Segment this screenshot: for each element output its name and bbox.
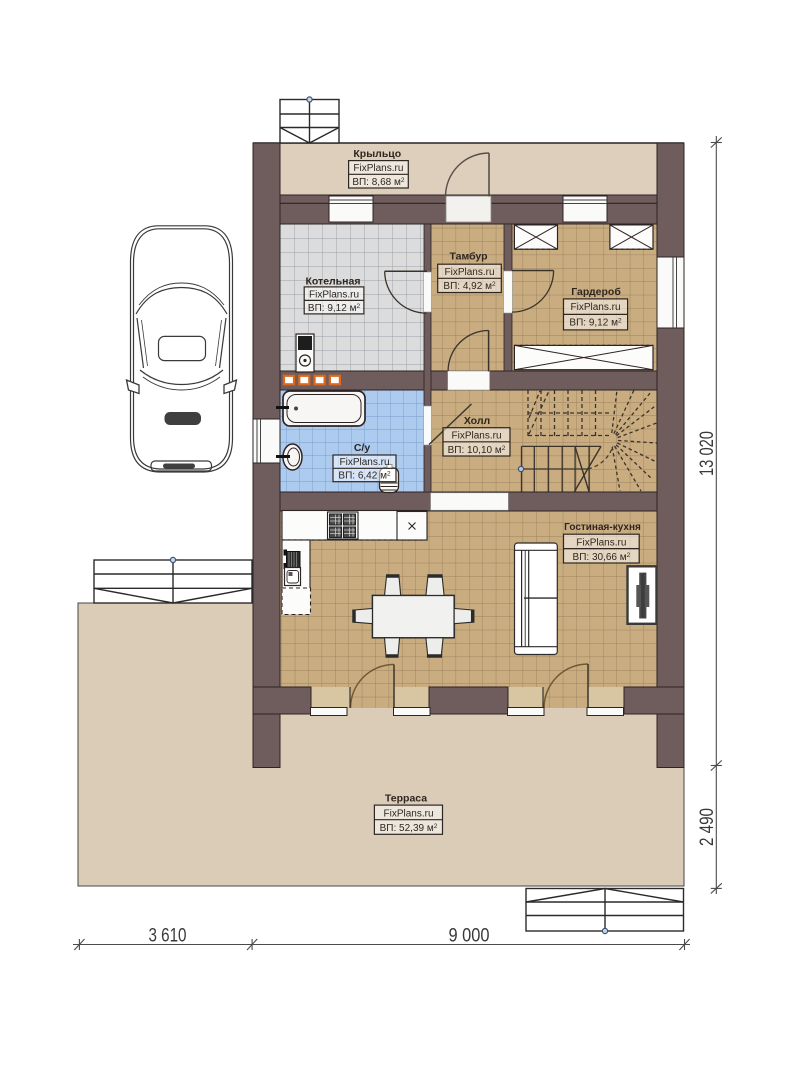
svg-text:ВП: 9,12 м2: ВП: 9,12 м2 <box>308 303 361 314</box>
svg-text:FixPlans.ru: FixPlans.ru <box>451 431 501 442</box>
svg-text:С/у: С/у <box>354 442 371 454</box>
svg-text:FixPlans.ru: FixPlans.ru <box>353 163 403 174</box>
svg-text:ВП: 10,10 м2: ВП: 10,10 м2 <box>448 445 506 456</box>
svg-text:ВП: 30,66 м2: ВП: 30,66 м2 <box>573 552 631 563</box>
svg-text:FixPlans.ru: FixPlans.ru <box>339 457 389 468</box>
svg-text:ВП: 9,12 м2: ВП: 9,12 м2 <box>569 318 622 329</box>
svg-text:FixPlans.ru: FixPlans.ru <box>383 809 433 820</box>
svg-text:FixPlans.ru: FixPlans.ru <box>309 289 359 300</box>
svg-text:Гардероб: Гардероб <box>571 286 621 298</box>
svg-text:Терраса: Терраса <box>385 793 427 805</box>
svg-text:FixPlans.ru: FixPlans.ru <box>570 302 620 313</box>
svg-text:3 610: 3 610 <box>149 926 187 947</box>
svg-text:FixPlans.ru: FixPlans.ru <box>444 267 494 278</box>
svg-text:Гостиная-кухня: Гостиная-кухня <box>564 522 641 533</box>
svg-text:ВП: 4,92 м2: ВП: 4,92 м2 <box>443 281 496 292</box>
svg-text:13 020: 13 020 <box>697 431 718 476</box>
svg-text:FixPlans.ru: FixPlans.ru <box>576 537 626 548</box>
svg-text:2 490: 2 490 <box>697 808 718 846</box>
svg-text:ВП: 8,68 м2: ВП: 8,68 м2 <box>352 177 405 188</box>
svg-text:Котельная: Котельная <box>306 276 361 288</box>
svg-text:9 000: 9 000 <box>449 926 490 947</box>
svg-text:Тамбур: Тамбур <box>449 251 487 263</box>
svg-text:Крыльцо: Крыльцо <box>353 148 401 160</box>
svg-text:ВП: 6,42 м2: ВП: 6,42 м2 <box>338 471 391 482</box>
svg-text:ВП: 52,39 м2: ВП: 52,39 м2 <box>380 823 438 834</box>
svg-text:Холл: Холл <box>464 415 490 427</box>
